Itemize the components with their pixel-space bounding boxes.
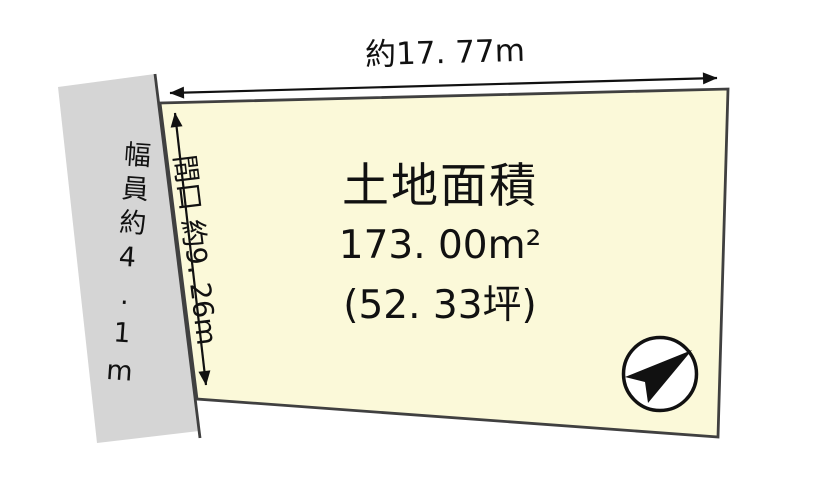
land-plot-diagram: 約17. 77m 間口 約9. 26m 幅員約4.1m 土地面積 173. 00…	[0, 0, 838, 482]
land-area-tsubo: (52. 33坪)	[240, 276, 640, 336]
land-area-block: 土地面積 173. 00m² (52. 33坪)	[240, 158, 640, 336]
land-area-square-meters: 173. 00m²	[240, 216, 640, 276]
land-area-title: 土地面積	[240, 158, 640, 216]
north-arrow-icon	[624, 338, 697, 411]
